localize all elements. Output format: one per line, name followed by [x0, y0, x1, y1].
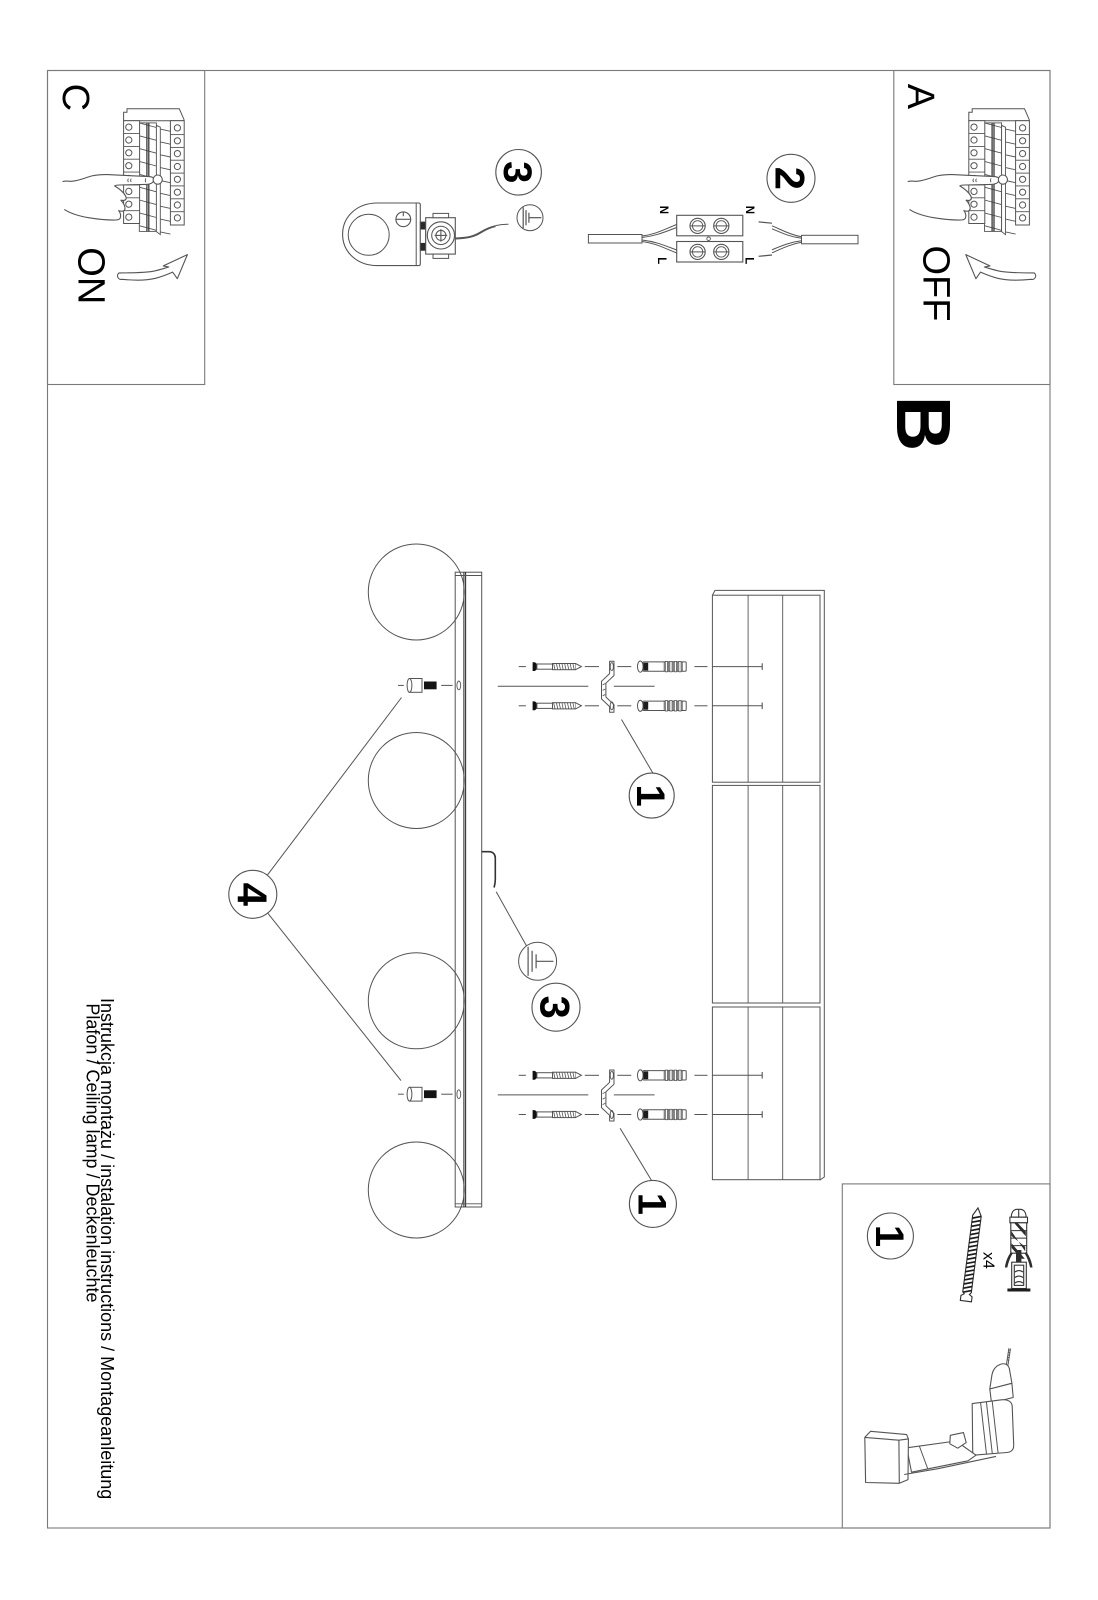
svg-text:2: 2: [767, 167, 814, 190]
svg-text:B: B: [880, 396, 966, 452]
svg-text:N: N: [743, 206, 755, 214]
svg-text:1: 1: [629, 1193, 673, 1215]
svg-text:x4: x4: [979, 1252, 996, 1269]
svg-text:3: 3: [495, 161, 539, 183]
svg-text:1: 1: [867, 1225, 911, 1247]
svg-text:Plafon / Ceiling lamp / Decken: Plafon / Ceiling lamp / Deckenleuchte: [83, 1003, 103, 1302]
svg-text:L: L: [742, 257, 754, 264]
svg-text:A: A: [899, 84, 941, 110]
svg-text:OFF: OFF: [914, 246, 956, 322]
svg-text:C: C: [54, 84, 96, 111]
svg-text:3: 3: [532, 996, 579, 1019]
svg-text:1: 1: [628, 784, 672, 806]
svg-text:ON: ON: [70, 247, 112, 304]
svg-text:L: L: [655, 257, 667, 264]
svg-text:N: N: [657, 206, 669, 214]
svg-text:4: 4: [229, 883, 276, 907]
